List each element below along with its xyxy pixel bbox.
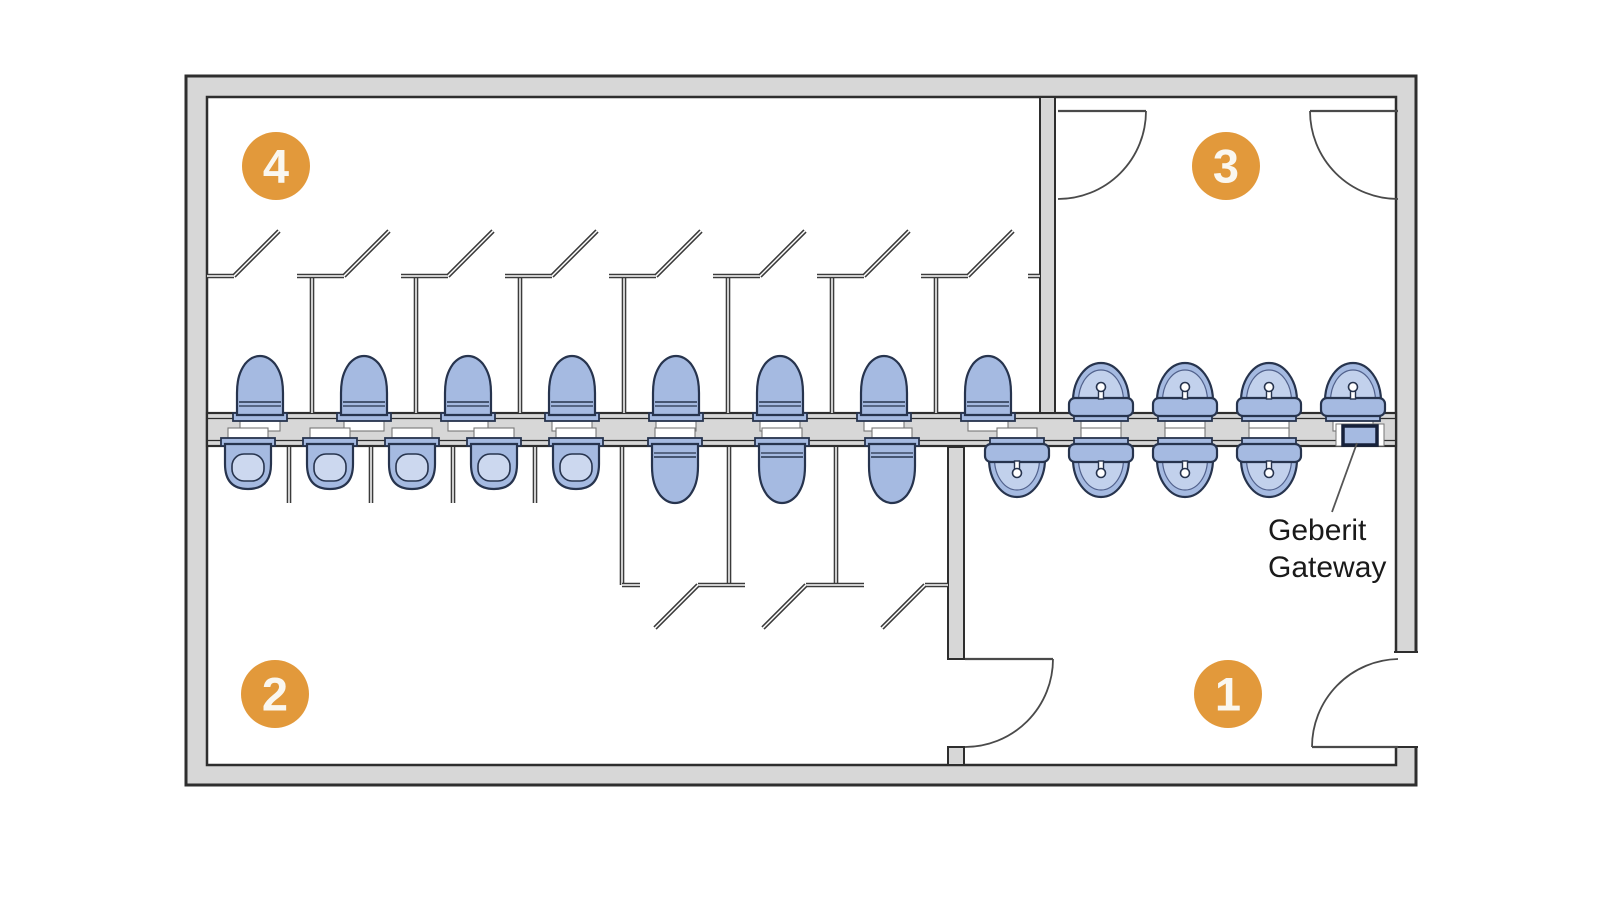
tap-knob-icon	[1265, 383, 1274, 392]
geberit-gateway	[1336, 424, 1384, 446]
urinal-fixture	[389, 444, 435, 489]
tap-knob-icon	[1097, 469, 1106, 478]
room-badge-number: 1	[1215, 668, 1241, 721]
flush-plate	[655, 428, 695, 438]
geberit-gateway-device	[1343, 426, 1377, 445]
urinal-fixture	[307, 444, 353, 489]
tap-knob-icon	[1181, 383, 1190, 392]
room-badge-3: 3	[1192, 132, 1260, 200]
toilet-fixture	[653, 356, 699, 415]
divider-wall-bottom	[948, 447, 964, 659]
flush-plate	[872, 428, 912, 438]
tap-knob-icon	[1349, 383, 1358, 392]
flush-plate	[1081, 428, 1121, 438]
flush-plate	[310, 428, 350, 438]
tap-knob-icon	[1181, 469, 1190, 478]
toilet-fixture	[757, 356, 803, 415]
toilet-fixture	[965, 356, 1011, 415]
divider-wall-top	[1040, 97, 1055, 413]
room-badge-4: 4	[242, 132, 310, 200]
flush-plate	[556, 428, 596, 438]
flush-plate	[997, 428, 1037, 438]
flush-plate	[392, 428, 432, 438]
toilet-fixture	[861, 356, 907, 415]
room-badge-number: 4	[263, 140, 289, 193]
gateway-label-line2: Gateway	[1268, 551, 1386, 584]
flush-plate	[1165, 428, 1205, 438]
floor-plan-svg: 4321GeberitGateway	[0, 0, 1600, 900]
divider-wall-bottom-stub	[948, 747, 964, 765]
toilet-fixture	[652, 444, 698, 503]
room-badge-number: 2	[262, 668, 288, 721]
urinal-fixture	[553, 444, 599, 489]
room-badge-1: 1	[1194, 660, 1262, 728]
flush-plate	[762, 428, 802, 438]
floor-plan-diagram: 4321GeberitGateway	[0, 0, 1600, 900]
toilet-fixture	[237, 356, 283, 415]
urinal-fixture	[225, 444, 271, 489]
toilet-fixture	[445, 356, 491, 415]
toilet-fixture	[341, 356, 387, 415]
toilet-fixture	[759, 444, 805, 503]
toilet-fixture	[549, 356, 595, 415]
tap-knob-icon	[1265, 469, 1274, 478]
right-wall-door-opening	[1394, 652, 1418, 747]
gateway-label-line1: Geberit	[1268, 514, 1367, 547]
tap-knob-icon	[1013, 469, 1022, 478]
toilet-fixture	[869, 444, 915, 503]
flush-plate	[1249, 428, 1289, 438]
flush-plate	[474, 428, 514, 438]
flush-plate	[228, 428, 268, 438]
room-badge-number: 3	[1213, 140, 1239, 193]
room-badge-2: 2	[241, 660, 309, 728]
tap-knob-icon	[1097, 383, 1106, 392]
urinal-fixture	[471, 444, 517, 489]
